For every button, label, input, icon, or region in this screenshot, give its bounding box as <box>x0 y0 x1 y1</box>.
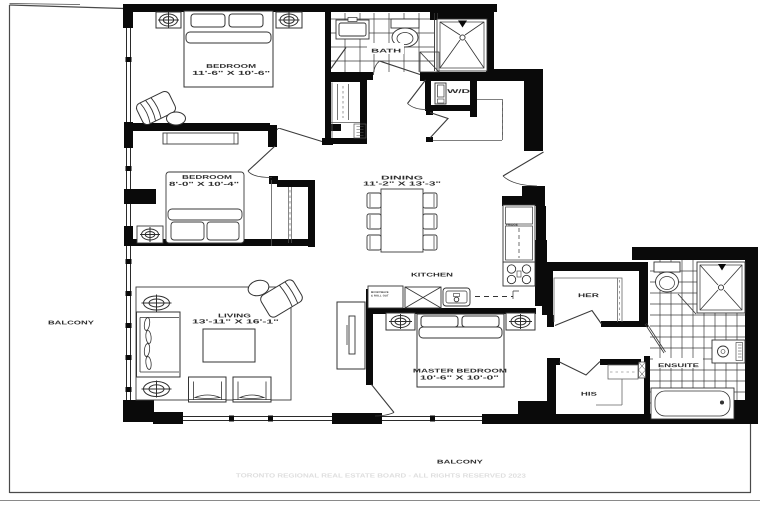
svg-text:MASTER BEDROOM: MASTER BEDROOM <box>413 369 508 375</box>
svg-text:BALCONY: BALCONY <box>48 320 95 326</box>
svg-text:11'-2" X 13'-3": 11'-2" X 13'-3" <box>363 181 441 187</box>
svg-text:MICROWAVE: MICROWAVE <box>371 290 389 294</box>
svg-text:BALCONY: BALCONY <box>437 460 484 466</box>
svg-text:11'-6" X 10'-6": 11'-6" X 10'-6" <box>192 71 270 77</box>
svg-text:& ROLL OUT: & ROLL OUT <box>371 293 389 297</box>
svg-text:ENSUITE: ENSUITE <box>658 363 700 369</box>
svg-text:BEDROOM: BEDROOM <box>206 64 257 70</box>
svg-text:KITCHEN: KITCHEN <box>411 273 453 279</box>
svg-text:10'-6" X 10'-0": 10'-6" X 10'-0" <box>420 376 499 382</box>
svg-text:TORONTO REGIONAL REAL ESTATE B: TORONTO REGIONAL REAL ESTATE BOARD - ALL… <box>236 473 527 479</box>
svg-text:FRIDGE: FRIDGE <box>506 223 518 227</box>
svg-text:13'-11" X 16'-1": 13'-11" X 16'-1" <box>192 319 279 325</box>
svg-text:BATH: BATH <box>371 48 401 54</box>
svg-text:W/D: W/D <box>447 89 470 95</box>
svg-text:8'-0" X 10'-4": 8'-0" X 10'-4" <box>169 182 239 188</box>
svg-text:BEDROOM: BEDROOM <box>182 175 233 181</box>
svg-text:HER: HER <box>578 293 599 299</box>
svg-text:HIS: HIS <box>581 392 598 398</box>
